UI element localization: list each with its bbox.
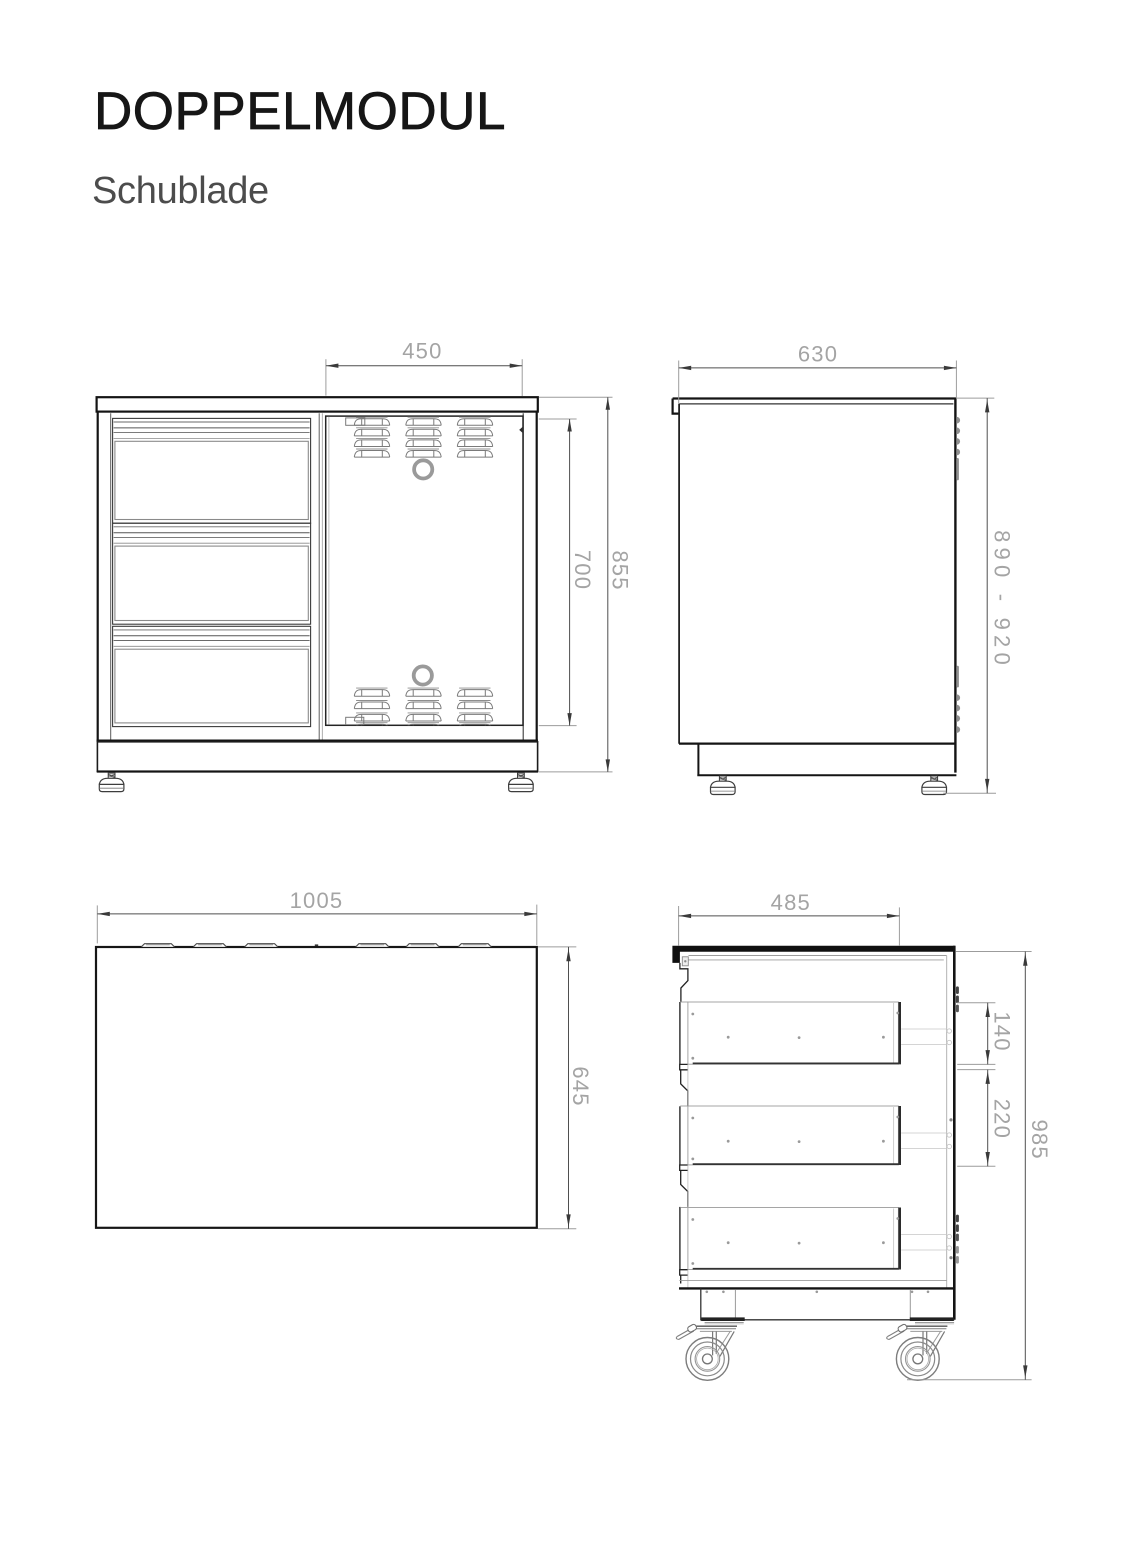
svg-text:700: 700 bbox=[570, 550, 595, 590]
svg-text:Schublade: Schublade bbox=[92, 170, 269, 212]
svg-text:450: 450 bbox=[402, 339, 442, 364]
svg-text:890 - 920: 890 - 920 bbox=[990, 530, 1015, 670]
svg-text:220: 220 bbox=[990, 1099, 1015, 1139]
svg-text:630: 630 bbox=[798, 341, 838, 366]
svg-text:485: 485 bbox=[771, 890, 811, 915]
svg-text:855: 855 bbox=[607, 550, 632, 590]
svg-text:DOPPELMODUL: DOPPELMODUL bbox=[94, 82, 506, 141]
svg-text:645: 645 bbox=[568, 1066, 593, 1106]
svg-text:140: 140 bbox=[990, 1011, 1015, 1051]
svg-text:1005: 1005 bbox=[290, 888, 344, 913]
svg-text:985: 985 bbox=[1027, 1119, 1052, 1159]
